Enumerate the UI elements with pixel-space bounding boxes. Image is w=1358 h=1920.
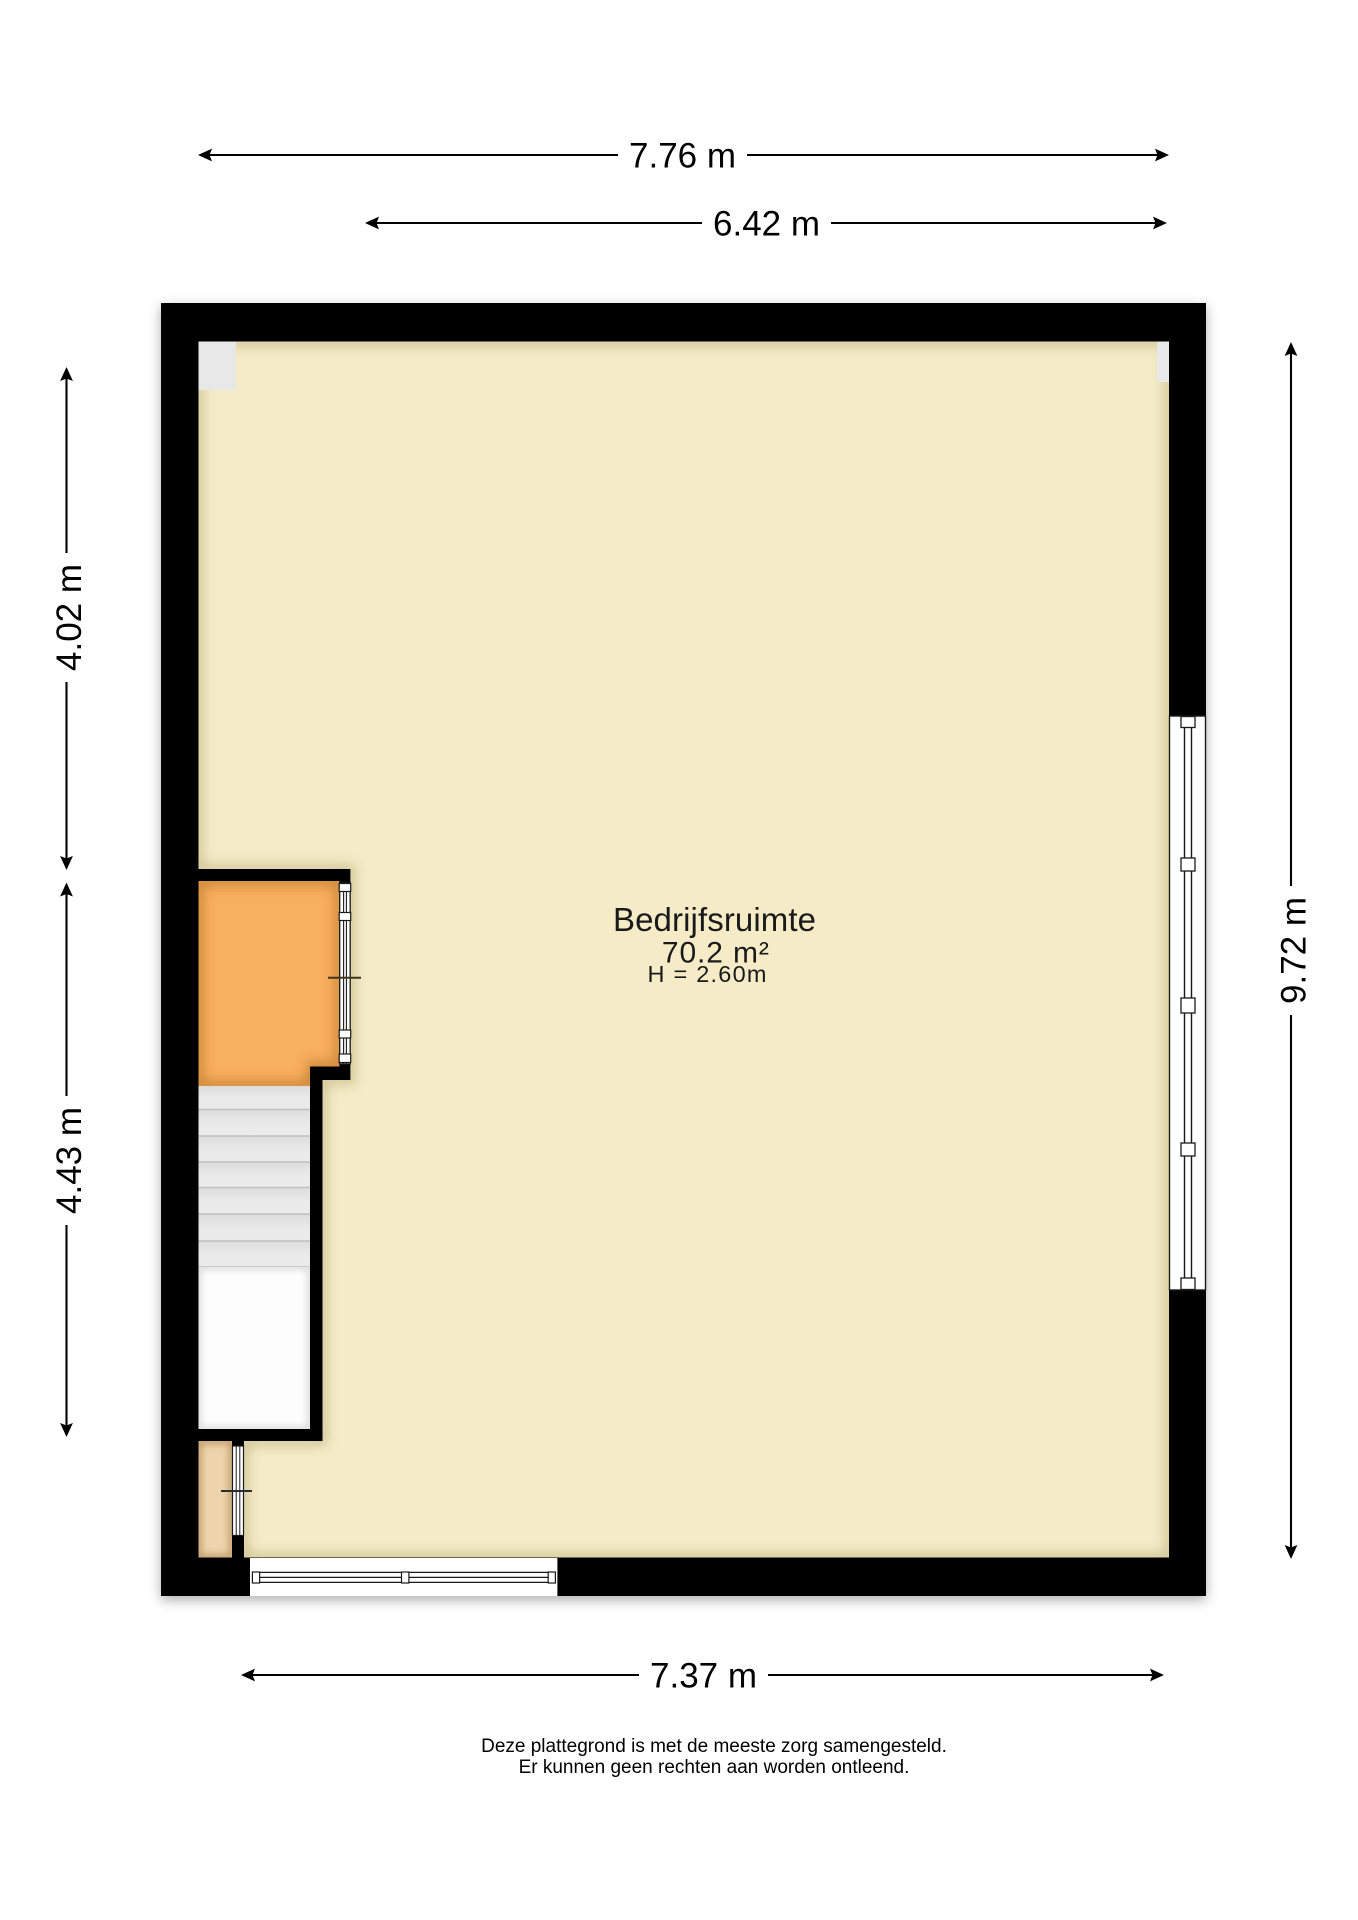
svg-text:4.43 m: 4.43 m	[50, 1107, 89, 1214]
svg-text:9.72 m: 9.72 m	[1275, 897, 1314, 1004]
svg-text:7.76 m: 7.76 m	[629, 137, 736, 176]
svg-text:7.37 m: 7.37 m	[650, 1657, 757, 1696]
svg-text:Er kunnen geen rechten aan wor: Er kunnen geen rechten aan worden ontlee…	[519, 1757, 910, 1778]
svg-text:Bedrijfsruimte: Bedrijfsruimte	[613, 901, 816, 938]
svg-text:4.02 m: 4.02 m	[50, 564, 89, 671]
svg-text:H = 2.60m: H = 2.60m	[648, 961, 767, 987]
svg-text:Deze plattegrond is met de mee: Deze plattegrond is met de meeste zorg s…	[481, 1736, 947, 1757]
svg-text:6.42 m: 6.42 m	[713, 205, 820, 244]
